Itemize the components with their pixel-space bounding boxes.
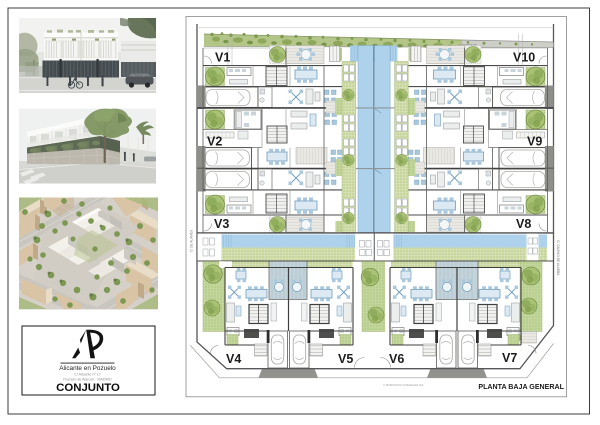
svg-text:C/ CAMINO DE ALARBA: C/ CAMINO DE ALARBA <box>556 240 560 276</box>
svg-text:© FRANCISCO GONZALEZ JUL: © FRANCISCO GONZALEZ JUL <box>383 383 424 387</box>
svg-text:V3: V3 <box>214 217 229 231</box>
svg-text:Pozuelo de Alarcón - MADRID: Pozuelo de Alarcón - MADRID <box>63 377 112 381</box>
svg-text:C/ Alicante nº 17: C/ Alicante nº 17 <box>74 373 100 377</box>
svg-text:Alicante en Pozuelo: Alicante en Pozuelo <box>59 365 116 372</box>
svg-text:V5: V5 <box>338 352 353 366</box>
svg-text:CONJUNTO: CONJUNTO <box>56 382 120 394</box>
svg-text:V7: V7 <box>502 351 517 365</box>
svg-text:V10: V10 <box>513 50 535 64</box>
svg-text:V9: V9 <box>527 135 542 149</box>
svg-text:V8: V8 <box>516 217 531 231</box>
svg-text:V2: V2 <box>207 135 222 149</box>
svg-text:C/ DE ALAMES: C/ DE ALAMES <box>190 230 194 252</box>
svg-text:V6: V6 <box>389 352 404 366</box>
svg-text:V1: V1 <box>215 50 230 64</box>
svg-text:PLANTA BAJA GENERAL: PLANTA BAJA GENERAL <box>478 383 564 391</box>
svg-text:V4: V4 <box>226 352 241 366</box>
